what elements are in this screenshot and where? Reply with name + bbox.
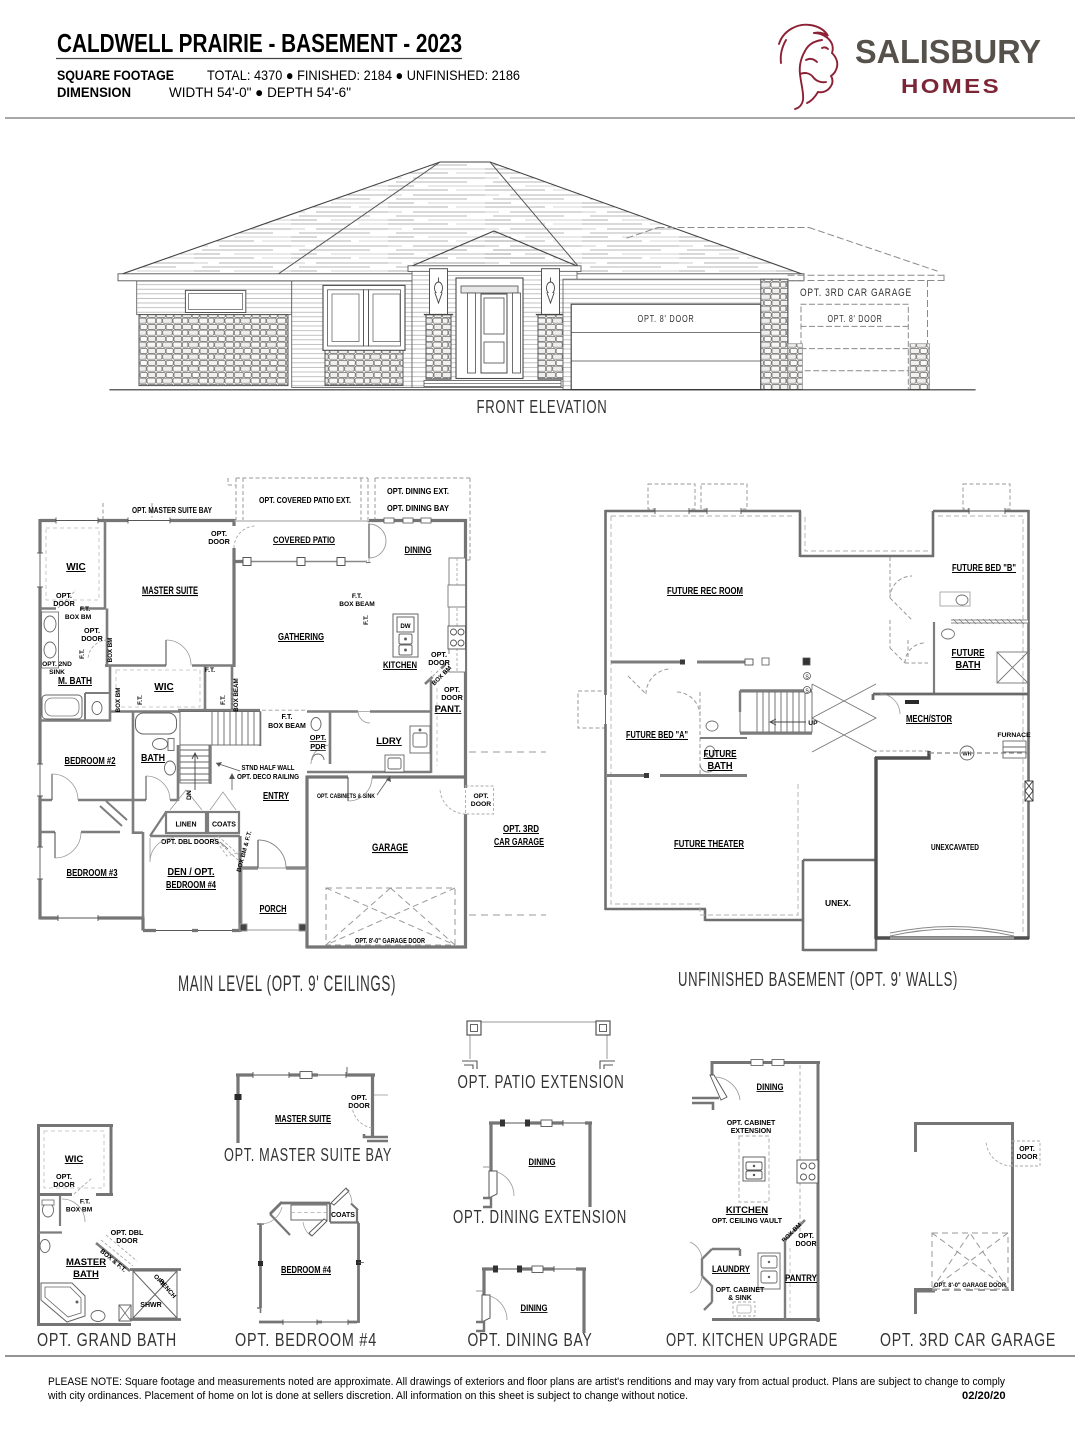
- svg-text:FUTURE: FUTURE: [952, 648, 985, 659]
- svg-text:DOOR: DOOR: [471, 801, 491, 808]
- svg-text:BOX BEAM: BOX BEAM: [268, 723, 306, 730]
- svg-text:SALISBURY: SALISBURY: [855, 33, 1041, 70]
- svg-text:BEDROOM #4: BEDROOM #4: [281, 1265, 331, 1276]
- svg-text:BEDROOM #2: BEDROOM #2: [65, 756, 116, 767]
- svg-text:OPT. 8'-0" GARAGE DOOR: OPT. 8'-0" GARAGE DOOR: [355, 938, 425, 945]
- svg-text:F.T.: F.T.: [205, 667, 215, 674]
- svg-text:DOOR: DOOR: [796, 1241, 817, 1248]
- svg-text:PLEASE NOTE: Square footage an: PLEASE NOTE: Square footage and measurem…: [48, 1376, 1005, 1388]
- svg-text:MASTER: MASTER: [66, 1257, 106, 1268]
- svg-text:DOOR: DOOR: [441, 693, 463, 702]
- svg-text:OPT. CABINET: OPT. CABINET: [716, 1287, 765, 1294]
- svg-text:DINING: DINING: [529, 1157, 556, 1167]
- svg-text:BOX BM: BOX BM: [115, 688, 122, 713]
- svg-text:SINK: SINK: [49, 669, 65, 676]
- svg-text:OPT. KITCHEN UPGRADE: OPT. KITCHEN UPGRADE: [666, 1329, 838, 1350]
- svg-text:UNEXCAVATED: UNEXCAVATED: [931, 842, 979, 852]
- svg-text:DOOR: DOOR: [208, 537, 230, 546]
- svg-text:OPT.: OPT.: [310, 733, 326, 742]
- svg-text:ENTRY: ENTRY: [263, 791, 289, 802]
- svg-text:OPT. 2ND: OPT. 2ND: [42, 661, 72, 668]
- svg-text:SQUARE FOOTAGE: SQUARE FOOTAGE: [57, 67, 174, 83]
- svg-text:MASTER SUITE: MASTER SUITE: [142, 585, 198, 597]
- svg-text:F.T.: F.T.: [79, 649, 86, 659]
- svg-text:OPT. 3RD CAR GARAGE: OPT. 3RD CAR GARAGE: [800, 287, 912, 299]
- svg-text:FURNACE: FURNACE: [997, 732, 1031, 739]
- svg-text:MAIN LEVEL (OPT. 9' CEILINGS): MAIN LEVEL (OPT. 9' CEILINGS): [178, 971, 396, 996]
- svg-text:UP: UP: [808, 720, 818, 727]
- svg-text:TOTAL: 4370 ● FINISHED: 2184: TOTAL: 4370 ● FINISHED: 2184 ● UNFINISHE…: [207, 68, 520, 83]
- svg-text:WIDTH 54'-0" ● DEPTH 54'-6": WIDTH 54'-0" ● DEPTH 54'-6": [169, 85, 351, 100]
- svg-text:OPT.: OPT.: [798, 1233, 814, 1240]
- svg-text:FRONT ELEVATION: FRONT ELEVATION: [477, 396, 608, 417]
- svg-text:WIC: WIC: [66, 562, 85, 573]
- svg-text:PORCH: PORCH: [260, 904, 287, 915]
- svg-text:OPT. 3RD CAR GARAGE: OPT. 3RD CAR GARAGE: [880, 1329, 1056, 1350]
- svg-text:CALDWELL PRAIRIE - BASEMENT -: CALDWELL PRAIRIE - BASEMENT - 2023: [57, 28, 462, 58]
- svg-text:UNEX.: UNEX.: [825, 898, 851, 908]
- svg-text:FUTURE REC ROOM: FUTURE REC ROOM: [667, 586, 743, 597]
- svg-text:OPT.: OPT.: [1019, 1146, 1035, 1153]
- svg-text:MASTER SUITE: MASTER SUITE: [275, 1114, 331, 1125]
- svg-text:STND HALF WALL: STND HALF WALL: [242, 765, 296, 772]
- svg-text:F.T.: F.T.: [352, 593, 362, 600]
- svg-text:FUTURE BED "B": FUTURE BED "B": [952, 563, 1016, 574]
- svg-text:KITCHEN: KITCHEN: [383, 660, 417, 671]
- svg-text:FUTURE BED "A": FUTURE BED "A": [626, 730, 688, 741]
- svg-text:DN: DN: [186, 790, 193, 800]
- svg-text:DOOR: DOOR: [116, 1236, 138, 1245]
- svg-text:COVERED PATIO: COVERED PATIO: [273, 535, 335, 545]
- svg-text:COATS: COATS: [331, 1212, 355, 1219]
- svg-text:KITCHEN: KITCHEN: [726, 1205, 768, 1216]
- svg-text:DW: DW: [400, 623, 410, 630]
- svg-text:F.T.: F.T.: [137, 695, 144, 705]
- svg-text:F.T.: F.T.: [282, 714, 293, 721]
- svg-text:OPT. PATIO EXTENSION: OPT. PATIO EXTENSION: [458, 1071, 625, 1092]
- svg-text:BOX BM: BOX BM: [66, 1207, 93, 1214]
- svg-text:BOX BEAM: BOX BEAM: [339, 601, 375, 608]
- svg-text:MECH/STOR: MECH/STOR: [906, 714, 953, 725]
- svg-text:BOX BEAM: BOX BEAM: [233, 678, 240, 711]
- svg-text:DOOR: DOOR: [53, 599, 75, 608]
- svg-text:BATH: BATH: [708, 761, 733, 772]
- svg-text:OPT. 3RD: OPT. 3RD: [503, 824, 539, 835]
- svg-text:OPT. COVERED PATIO EXT.: OPT. COVERED PATIO EXT.: [259, 495, 351, 505]
- svg-text:WIC: WIC: [65, 1154, 84, 1165]
- svg-text:F.T.: F.T.: [220, 695, 227, 705]
- svg-text:OPT. GRAND BATH: OPT. GRAND BATH: [37, 1329, 177, 1350]
- svg-text:BOX BM: BOX BM: [65, 614, 92, 621]
- svg-text:OPT. CABINETS & SINK: OPT. CABINETS & SINK: [317, 793, 375, 800]
- svg-text:CAR GARAGE: CAR GARAGE: [494, 837, 544, 848]
- svg-text:OPT. 8' DOOR: OPT. 8' DOOR: [638, 314, 695, 325]
- svg-text:LAUNDRY: LAUNDRY: [712, 1264, 751, 1275]
- svg-text:LINEN: LINEN: [176, 822, 197, 829]
- svg-text:BATH: BATH: [141, 753, 165, 764]
- svg-text:OPT. 8' DOOR: OPT. 8' DOOR: [828, 314, 883, 325]
- svg-text:OPT. DINING BAY: OPT. DINING BAY: [468, 1329, 593, 1350]
- svg-text:SHWR: SHWR: [140, 1302, 161, 1309]
- svg-text:DEN / OPT.: DEN / OPT.: [168, 867, 215, 878]
- svg-text:GATHERING: GATHERING: [278, 632, 324, 643]
- svg-text:DINING: DINING: [521, 1303, 548, 1313]
- svg-text:OPT. MASTER SUITE BAY: OPT. MASTER SUITE BAY: [224, 1144, 392, 1165]
- svg-text:DINING: DINING: [757, 1082, 784, 1092]
- svg-text:OPT. MASTER SUITE BAY: OPT. MASTER SUITE BAY: [132, 505, 212, 515]
- svg-text:LDRY: LDRY: [376, 736, 402, 747]
- svg-text:OPT. DINING EXT.: OPT. DINING EXT.: [387, 486, 449, 496]
- svg-text:BATH: BATH: [956, 660, 981, 671]
- svg-text:F.T.: F.T.: [363, 615, 370, 625]
- svg-text:PANT.: PANT.: [435, 704, 462, 715]
- svg-text:OPT. CEILING VAULT: OPT. CEILING VAULT: [712, 1218, 783, 1225]
- svg-text:M. BATH: M. BATH: [58, 676, 92, 687]
- svg-text:OPT. CABINET: OPT. CABINET: [727, 1120, 776, 1127]
- svg-text:FUTURE THEATER: FUTURE THEATER: [674, 839, 745, 850]
- svg-text:DOOR: DOOR: [348, 1101, 370, 1110]
- svg-text:OPT. 8'-0" GARAGE DOOR: OPT. 8'-0" GARAGE DOOR: [934, 1282, 1006, 1289]
- svg-text:BEDROOM #3: BEDROOM #3: [67, 868, 118, 879]
- svg-text:OPT. DECO RAILING: OPT. DECO RAILING: [237, 774, 299, 781]
- svg-text:BEDROOM #4: BEDROOM #4: [166, 880, 216, 891]
- svg-text:PANTRY: PANTRY: [785, 1273, 818, 1284]
- svg-text:EXTENSION: EXTENSION: [731, 1128, 771, 1135]
- svg-text:OPT. DINING EXTENSION: OPT. DINING EXTENSION: [453, 1206, 627, 1227]
- svg-text:WIC: WIC: [154, 682, 173, 693]
- svg-text:DIMENSION: DIMENSION: [57, 84, 131, 100]
- svg-text:BOX BM: BOX BM: [107, 638, 114, 663]
- svg-text:F.T.: F.T.: [80, 1199, 90, 1206]
- svg-text:HOMES: HOMES: [901, 76, 1001, 98]
- svg-text:FUTURE: FUTURE: [704, 749, 737, 760]
- svg-text:DOOR: DOOR: [1017, 1154, 1038, 1161]
- svg-text:with city ordinances. Placemen: with city ordinances. Placement of home …: [47, 1390, 688, 1402]
- svg-text:OPT.: OPT.: [473, 793, 488, 800]
- svg-text:DOOR: DOOR: [53, 1180, 75, 1189]
- svg-text:F.T.: F.T.: [80, 606, 90, 613]
- svg-text:& SINK: & SINK: [728, 1295, 752, 1302]
- svg-text:GARAGE: GARAGE: [372, 842, 408, 854]
- svg-text:UNFINISHED BASEMENT (OPT. 9' W: UNFINISHED BASEMENT (OPT. 9' WALLS): [678, 968, 958, 991]
- svg-text:OPT. DINING BAY: OPT. DINING BAY: [387, 503, 449, 513]
- svg-text:DOOR: DOOR: [81, 634, 103, 643]
- svg-text:PDR: PDR: [310, 742, 326, 751]
- svg-text:02/20/20: 02/20/20: [962, 1390, 1006, 1402]
- svg-text:BATH: BATH: [73, 1269, 99, 1280]
- svg-text:DINING: DINING: [405, 545, 432, 555]
- svg-text:COATS: COATS: [212, 822, 236, 829]
- svg-text:OPT. BEDROOM #4: OPT. BEDROOM #4: [235, 1329, 377, 1350]
